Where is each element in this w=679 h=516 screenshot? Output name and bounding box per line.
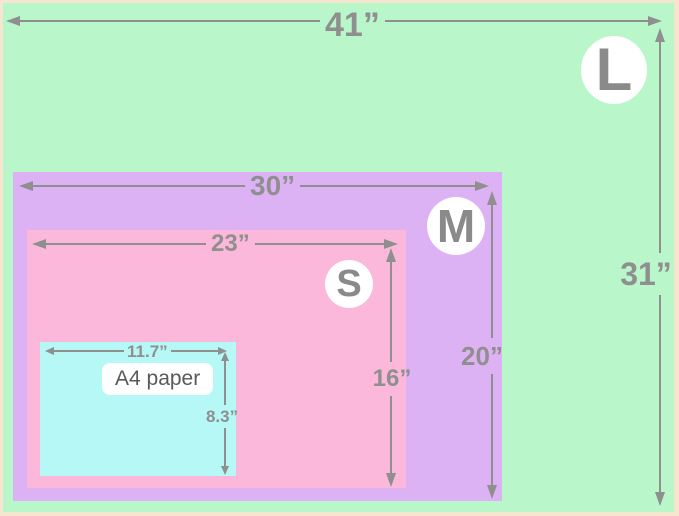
dimension-a4-width: 11.7” <box>45 337 227 365</box>
arrowhead-right-icon <box>475 181 489 191</box>
size-s-letter: S <box>336 265 361 303</box>
dimension-label-s-width: 23” <box>211 232 250 256</box>
dimension-l-width: 41” <box>6 1 662 41</box>
dimension-label-l-width: 41” <box>325 8 380 42</box>
dimension-label-m-height: 20” <box>461 343 503 369</box>
arrowhead-left-icon <box>45 347 54 355</box>
dimension-line-segment <box>224 428 226 466</box>
dimension-label-a4-width: 11.7” <box>127 343 168 360</box>
arrowhead-up-icon <box>487 191 497 205</box>
dimension-s-height: 16” <box>373 248 409 487</box>
arrowhead-up-icon <box>221 352 229 361</box>
dimension-label-m-width: 30” <box>250 172 295 200</box>
size-l-badge: L <box>581 36 647 104</box>
dimension-m-width: 30” <box>19 166 489 206</box>
dimension-label-l-height: 31” <box>620 258 672 290</box>
arrowhead-up-icon <box>655 28 665 42</box>
dimension-line-segment <box>46 243 206 245</box>
dimension-line-segment <box>224 361 226 405</box>
dimension-line-segment <box>491 374 493 485</box>
a4-paper-label-text: A4 paper <box>115 367 200 391</box>
dimension-line-segment <box>491 205 493 338</box>
arrowhead-left-icon <box>19 181 33 191</box>
dimension-line-segment <box>300 185 475 187</box>
size-l-letter: L <box>596 40 633 100</box>
arrowhead-right-icon <box>648 16 662 26</box>
dimension-line-segment <box>54 350 124 352</box>
arrowhead-down-icon <box>221 466 229 475</box>
dimension-label-s-height: 16” <box>373 367 412 391</box>
size-comparison-diagram: 41” 31” 30” 20” 23” 16” <box>0 0 679 516</box>
size-s-badge: S <box>325 260 373 308</box>
dimension-s-width: 23” <box>32 226 398 262</box>
arrowhead-left-icon <box>32 239 46 249</box>
dimension-line-segment <box>385 20 648 22</box>
dimension-line-segment <box>659 42 661 253</box>
dimension-line-segment <box>20 20 320 22</box>
dimension-label-a4-height: 8.3” <box>206 408 238 425</box>
arrowhead-down-icon <box>655 492 665 506</box>
arrowhead-left-icon <box>6 16 20 26</box>
dimension-line-segment <box>390 262 392 362</box>
dimension-line-segment <box>390 396 392 473</box>
dimension-line-segment <box>659 295 661 492</box>
a4-paper-label: A4 paper <box>102 363 213 395</box>
size-m-badge: M <box>427 197 485 255</box>
arrowhead-down-icon <box>386 473 396 487</box>
size-m-letter: M <box>437 203 475 249</box>
dimension-line-segment <box>255 243 384 245</box>
dimension-l-height: 31” <box>640 28 679 506</box>
dimension-a4-height: 8.3” <box>209 352 241 475</box>
arrowhead-down-icon <box>487 485 497 499</box>
arrowhead-up-icon <box>386 248 396 262</box>
dimension-line-segment <box>33 185 245 187</box>
